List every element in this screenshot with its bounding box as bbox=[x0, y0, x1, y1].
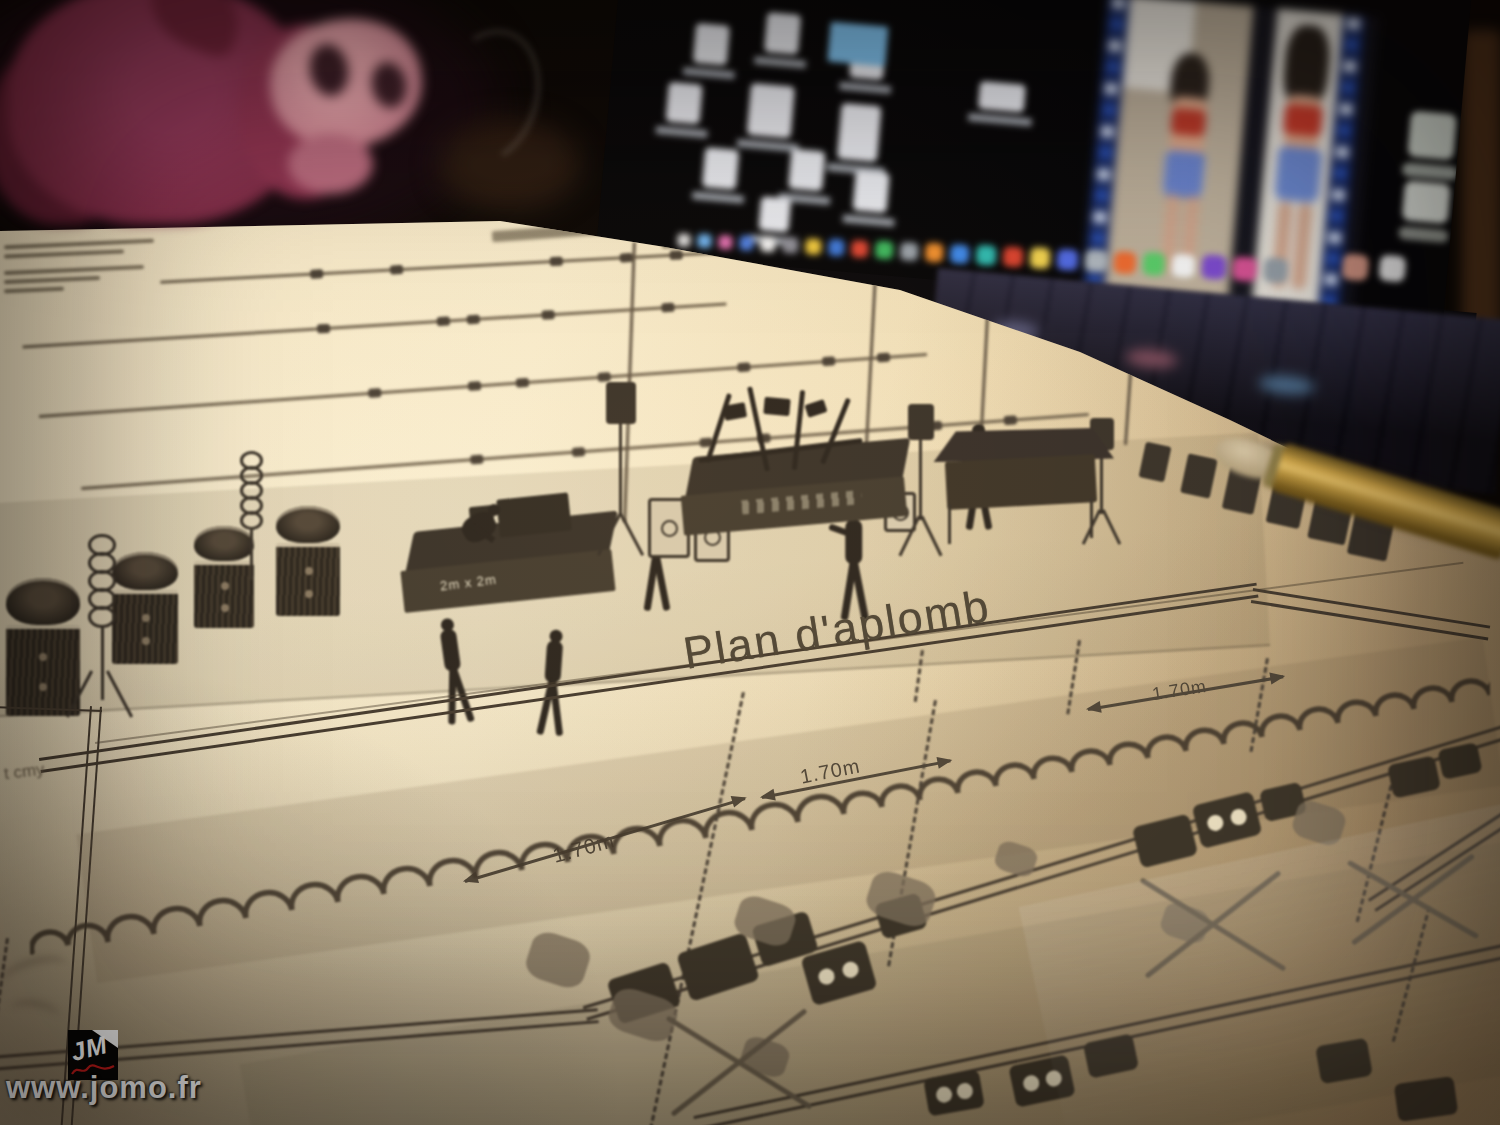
filmstrip-square bbox=[1101, 125, 1114, 137]
dock-icon bbox=[1201, 254, 1226, 279]
filmstrip-square bbox=[1099, 147, 1112, 159]
dock-icon bbox=[1113, 251, 1136, 274]
filmstrip-square bbox=[1347, 18, 1360, 30]
dock-icon bbox=[976, 245, 997, 266]
window-thumbnail bbox=[1402, 162, 1459, 181]
dock-icon bbox=[1171, 253, 1195, 277]
filmstrip-square bbox=[1336, 146, 1349, 158]
key-glint bbox=[1125, 347, 1178, 370]
filmstrip-square bbox=[1332, 189, 1345, 201]
window-thumbnail bbox=[1398, 226, 1449, 243]
dock-icon bbox=[677, 233, 691, 247]
desktop-file-icon bbox=[852, 170, 889, 213]
dock-icon bbox=[1142, 252, 1166, 276]
filmstrip-square bbox=[1334, 167, 1347, 179]
dock-icon bbox=[899, 241, 918, 260]
desktop-file-icon bbox=[837, 103, 882, 162]
window-thumbnail bbox=[1402, 180, 1451, 224]
filmstrip-square bbox=[1343, 60, 1356, 72]
dock-icon bbox=[1056, 248, 1078, 270]
dock-icon bbox=[738, 235, 753, 250]
filmstrip-square bbox=[1095, 189, 1108, 201]
dock-icon bbox=[718, 234, 733, 249]
desktop-file-icon bbox=[764, 12, 801, 55]
dock-icon bbox=[804, 238, 821, 255]
filmstrip-square bbox=[1328, 231, 1341, 243]
folder-window bbox=[827, 22, 888, 67]
dock-icon bbox=[1232, 256, 1257, 281]
filmstrip-square bbox=[1340, 103, 1353, 115]
dock-icon bbox=[1263, 257, 1289, 283]
filmstrip-square bbox=[1103, 104, 1116, 116]
window-thumbnail bbox=[1407, 111, 1457, 161]
key-glint bbox=[1258, 374, 1315, 397]
filmstrip-square bbox=[1091, 232, 1104, 244]
filmstrip-square bbox=[1108, 40, 1121, 52]
filmstrip-square bbox=[1338, 125, 1351, 137]
filmstrip-square bbox=[1106, 61, 1119, 73]
tripod-plan-mark bbox=[654, 1000, 824, 1120]
dock-icon bbox=[827, 239, 844, 256]
dock-icon bbox=[782, 237, 798, 253]
filmstrip-square bbox=[1093, 211, 1106, 223]
desktop-file-icon bbox=[665, 82, 702, 125]
filmstrip-square bbox=[1105, 83, 1118, 95]
desk-photo-scene: 2m x 2m bbox=[0, 0, 1500, 1125]
site-url: www.jomo.fr bbox=[6, 1070, 202, 1106]
filmstrip-square bbox=[1330, 210, 1343, 222]
pig-figurine bbox=[0, 0, 458, 254]
desktop-file-icon bbox=[702, 147, 739, 190]
desktop-file-icon bbox=[693, 23, 730, 66]
dock-icon bbox=[1084, 249, 1107, 272]
filmstrip-square bbox=[1110, 18, 1123, 30]
dock-icon bbox=[1002, 246, 1023, 267]
cosplay-figure bbox=[1278, 8, 1344, 14]
dock-icon bbox=[950, 244, 970, 264]
desktop-file-icon bbox=[788, 149, 825, 192]
filmstrip-square bbox=[1112, 0, 1125, 9]
dock-icon bbox=[851, 239, 869, 257]
shelf-strip bbox=[1462, 30, 1500, 340]
dock-icon bbox=[1029, 247, 1051, 269]
filmstrip-square bbox=[1097, 168, 1110, 180]
desktop-file-icon bbox=[747, 83, 795, 139]
dock-icon bbox=[875, 240, 894, 259]
dock-icon bbox=[924, 242, 944, 262]
filmstrip-square bbox=[1345, 39, 1358, 51]
dock-icon bbox=[760, 236, 776, 252]
desktop-file-icon bbox=[978, 81, 1026, 113]
pencil-scribble bbox=[8, 996, 62, 1031]
filmstrip-square bbox=[1342, 82, 1355, 94]
dock-icon bbox=[697, 234, 711, 248]
